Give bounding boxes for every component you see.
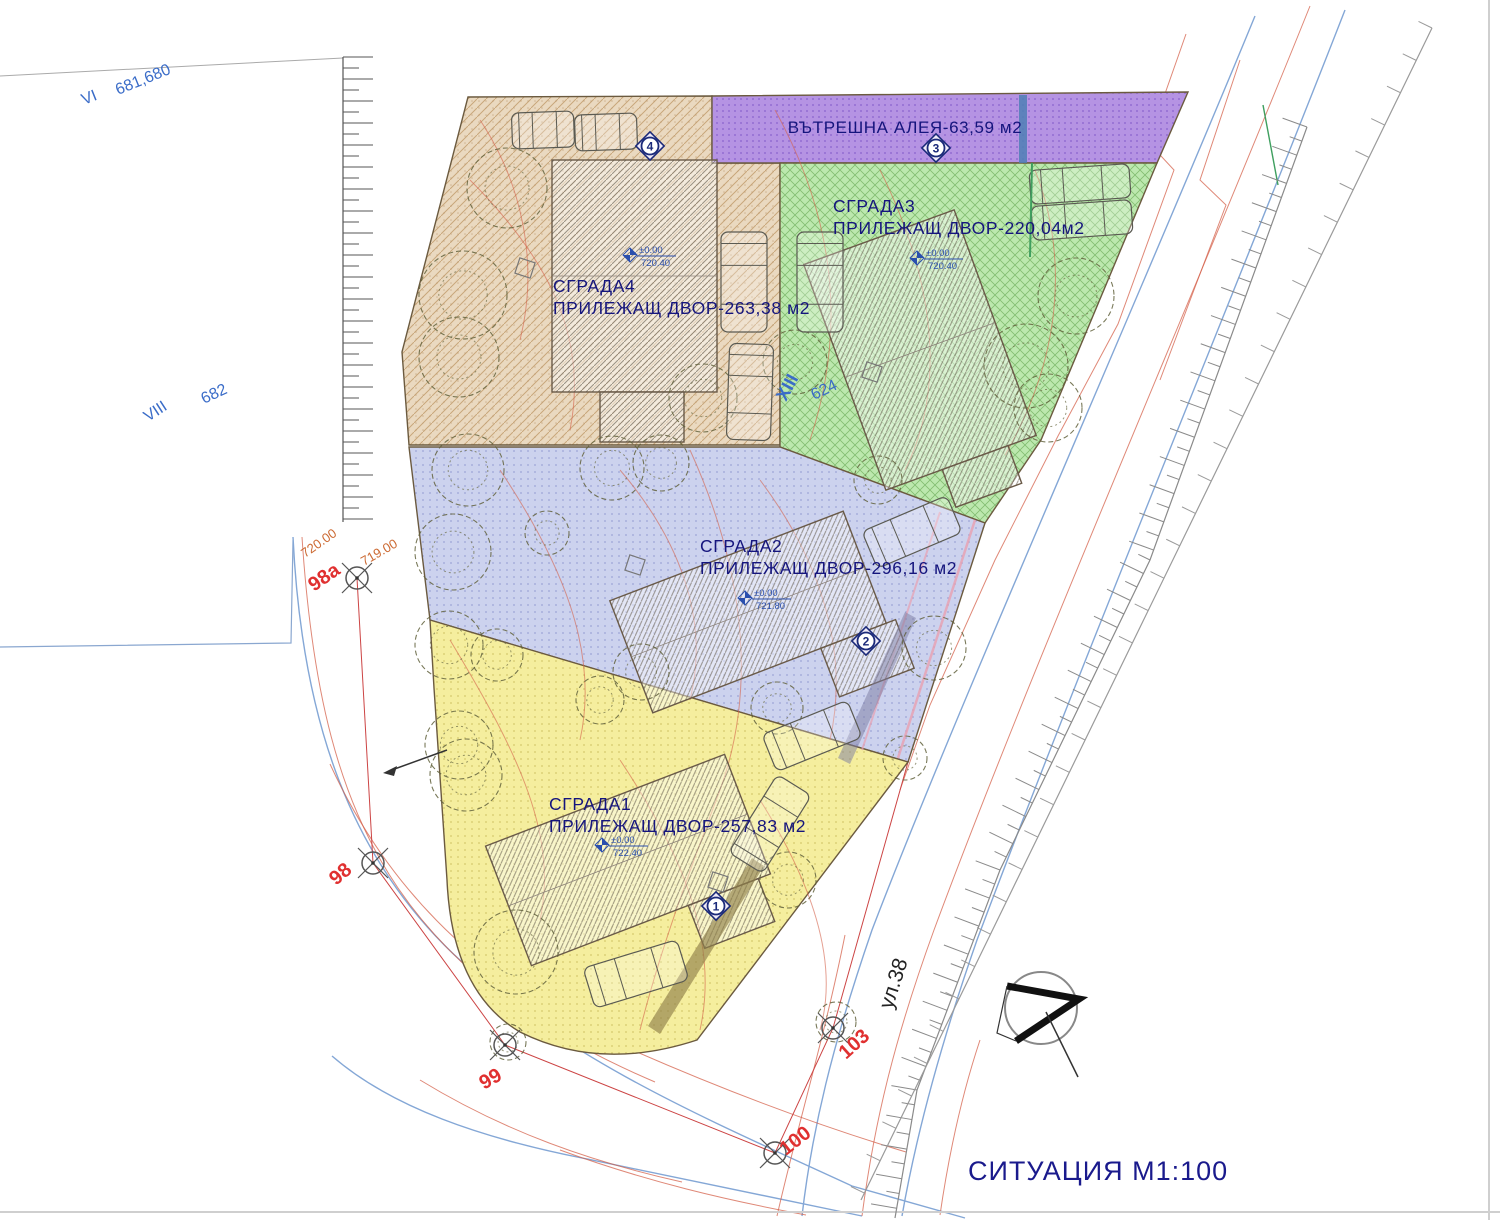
hachure-tick [1262, 175, 1286, 184]
hachure-tick [1040, 798, 1053, 805]
hachure-tick [993, 895, 1006, 902]
site-plan-drawing: 4 3 2 1 ±0.00 720.40 [0, 0, 1500, 1220]
point-99: 99 [476, 1064, 506, 1094]
hachure-tick [1182, 507, 1195, 514]
hachure-tick [1138, 554, 1150, 560]
hachure-tick [891, 1162, 904, 1164]
hachure-tick [1150, 572, 1163, 579]
elev-top: ±0.00 [611, 835, 635, 846]
hachure-tick [1228, 306, 1240, 310]
hachure-tick [1072, 733, 1085, 740]
hachure-tick [1087, 701, 1100, 708]
hachure-tick [867, 1154, 880, 1161]
hachure-tick [1099, 635, 1111, 641]
hachure-tick [1170, 428, 1194, 437]
survey-point-icon [358, 848, 388, 878]
hachure-tick [1002, 805, 1025, 816]
hachure-tick [1135, 604, 1148, 611]
hachure-tick [930, 1020, 942, 1025]
hachure-tick [983, 879, 995, 884]
hachure-tick [1009, 863, 1022, 870]
hachure-tick [1180, 400, 1204, 409]
hachure-tick [1371, 119, 1384, 126]
hachure-tick [1308, 248, 1321, 255]
contour-elevation-labels: 720.00 719.00 [298, 525, 400, 568]
hachure-tick [944, 945, 968, 954]
hachure-tick [1290, 137, 1302, 141]
elev-base: 721.80 [756, 601, 785, 612]
hachure-tick [961, 936, 973, 941]
hachure-tick [1419, 21, 1432, 28]
hachure-tick [1120, 562, 1143, 573]
hachure-tick [1024, 831, 1037, 838]
hachure-tick [1283, 118, 1307, 127]
hachure-tick [919, 1048, 931, 1053]
hachure-tick [1094, 616, 1117, 627]
hachure-tick [1272, 146, 1296, 155]
hachure-tick [1292, 280, 1305, 287]
hachure-tick [908, 1076, 920, 1081]
street-label: ул.38 [875, 955, 913, 1011]
hachure-tick [1208, 362, 1220, 366]
parcel-viii-number: 682 [199, 381, 230, 408]
hachure-tick [886, 1191, 899, 1193]
hachure-tick [1277, 313, 1290, 320]
marker-number: 3 [933, 142, 940, 156]
drawing-title: СИТУАЦИЯ М1:100 [968, 1156, 1228, 1186]
hachure-tick [1191, 372, 1215, 381]
hachure-tick [1016, 778, 1039, 789]
survey-point-icon [490, 1030, 520, 1060]
hachure-tick [1125, 581, 1137, 587]
car-icon [726, 343, 773, 440]
hachure-tick [1252, 203, 1276, 212]
hachure-tick [1245, 377, 1258, 384]
hachure-tick [1239, 278, 1251, 282]
hachure-tick [933, 973, 957, 982]
hachure-tick [1166, 539, 1179, 546]
parcel-vi: VI [79, 87, 99, 108]
hachure-tick [1157, 503, 1169, 507]
parcel-vi-number: 681,680 [113, 61, 173, 98]
hachure-tick [965, 889, 989, 898]
contour-719: 719.00 [358, 536, 400, 569]
hachure-tick [1008, 824, 1020, 830]
hachure-tick [1177, 447, 1189, 451]
hachure-tick [882, 1122, 895, 1129]
hachure-tick [1214, 442, 1227, 449]
hachure-tick [1261, 345, 1274, 352]
hachure-tick [1279, 165, 1291, 169]
contour-720: 720.00 [298, 525, 339, 560]
north-arrow-icon [997, 972, 1079, 1077]
hachure-tick [1042, 724, 1065, 735]
elev-top: ±0.00 [754, 588, 778, 599]
hachure-tick [1086, 662, 1098, 668]
hachure-tick [1119, 636, 1132, 643]
hachure-tick [995, 851, 1007, 857]
hachure-tick [876, 1174, 902, 1178]
hachure-tick [1340, 183, 1353, 190]
hachure-tick [897, 1132, 910, 1134]
hachure-tick [1103, 669, 1116, 676]
survey-point-icon [342, 563, 372, 593]
marker-number: 1 [713, 900, 720, 914]
hachure-tick [1056, 766, 1069, 773]
elev-top: ±0.00 [639, 245, 663, 256]
hachure-tick [898, 1089, 911, 1096]
zone4-name: СГРАДА4 [553, 276, 635, 296]
hachure-tick [972, 908, 984, 913]
hachure-tick [1218, 334, 1230, 338]
hachure-tick [1221, 287, 1245, 296]
hachure-tick [1198, 391, 1210, 395]
marker-number: 4 [647, 140, 654, 154]
point-98a: 98a [304, 558, 345, 596]
hachure-tick [912, 1029, 936, 1038]
hachure-tick [1167, 475, 1179, 479]
elev-base: 720.40 [641, 258, 670, 269]
hachure-tick [1146, 532, 1158, 536]
hachure-tick [1073, 689, 1085, 695]
alley-label: ВЪТРЕШНА АЛЕЯ-63,59 м2 [788, 118, 1023, 137]
hachure-tick [1403, 54, 1416, 61]
hachure-tick [1324, 216, 1337, 223]
zone4-yard: ПРИЛЕЖАЩ ДВОР-263,38 м2 [553, 298, 810, 318]
hachure-tick [1198, 475, 1211, 482]
hachure-tick [954, 917, 978, 926]
zone2-name: СГРАДА2 [700, 536, 782, 556]
elev-base: 720.40 [928, 261, 957, 272]
elev-base: 722.40 [613, 848, 642, 859]
hachure-tick [951, 964, 963, 969]
car-icon [1029, 164, 1131, 205]
parcel-viii: VIII [141, 398, 170, 425]
car-icon [511, 111, 574, 149]
zone3-yard: ПРИЛЕЖАЩ ДВОР-220,04м2 [833, 218, 1085, 238]
hachure-tick [1081, 643, 1104, 654]
hachure-tick [923, 1001, 947, 1010]
hachure-tick [871, 1204, 897, 1208]
zone3-name: СГРАДА3 [833, 196, 915, 216]
hachure-tick [886, 1115, 912, 1119]
hachure-tick [1068, 670, 1091, 681]
hachure-tick [1387, 86, 1400, 93]
hachure-tick [891, 1086, 917, 1090]
zone2-yard: ПРИЛЕЖАЩ ДВОР-296,16 м2 [700, 558, 957, 578]
hachure-tick [1129, 541, 1153, 550]
hachure-tick [976, 861, 1000, 870]
hachure-tick [902, 1057, 926, 1066]
direction-arrow [383, 750, 447, 776]
hachure-tick [1201, 344, 1225, 353]
hachure-tick [989, 832, 1012, 843]
hachure-tick [1249, 249, 1261, 253]
zone1-yard: ПРИЛЕЖАЩ ДВОР-257,83 м2 [549, 816, 806, 836]
car-icon [574, 113, 637, 151]
zone1-name: СГРАДА1 [549, 794, 631, 814]
elev-top: ±0.00 [926, 248, 950, 259]
hachure-tick [1187, 419, 1199, 423]
hachure-tick [1229, 410, 1242, 417]
hachure-tick [1112, 608, 1124, 614]
point-98: 98 [325, 859, 356, 890]
hachure-tick [1355, 151, 1368, 158]
marker-number: 2 [863, 635, 870, 649]
